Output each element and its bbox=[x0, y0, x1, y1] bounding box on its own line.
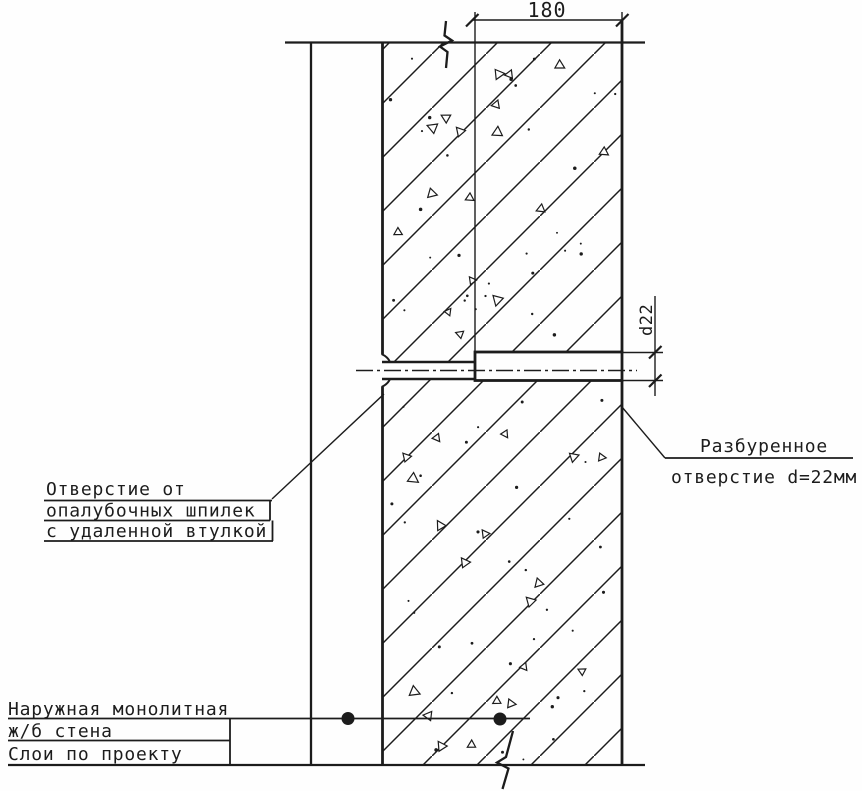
aggregate-dot bbox=[521, 401, 524, 404]
aggregate-dot bbox=[614, 93, 616, 95]
aggregate-dot bbox=[434, 748, 438, 752]
aggregate-dot bbox=[392, 299, 395, 302]
aggregate-dot bbox=[451, 692, 453, 694]
aggregate-dot bbox=[477, 426, 479, 428]
aggregate-dot bbox=[594, 92, 596, 94]
wall-label-line1: Наружная монолитная bbox=[8, 699, 229, 720]
leader-dot-layers bbox=[342, 712, 355, 725]
aggregate-dot bbox=[533, 638, 535, 640]
aggregate-dot bbox=[466, 294, 469, 297]
wall-label-line3: Слои по проекту bbox=[8, 744, 183, 765]
aggregate-dot bbox=[515, 486, 518, 489]
aggregate-dot bbox=[528, 128, 530, 130]
aggregate-dot bbox=[501, 751, 504, 754]
drawing-canvas: 180 d22 Отверстие от опалубочных шпилек … bbox=[0, 0, 862, 791]
dim-d22-label: d22 bbox=[637, 304, 657, 336]
aggregate-dot bbox=[407, 600, 409, 602]
aggregate-dot bbox=[584, 461, 586, 463]
aggregate-dot bbox=[403, 309, 405, 311]
aggregate-dot bbox=[484, 295, 486, 297]
aggregate-dot bbox=[476, 530, 479, 533]
wall-section bbox=[384, 43, 622, 765]
drilled-hole-label-line2: отверстие d=22мм bbox=[671, 467, 857, 488]
concrete-hatch bbox=[384, 43, 622, 765]
wall-label-line2: ж/б стена bbox=[8, 721, 113, 742]
aggregate-dot bbox=[438, 645, 441, 648]
drilled-hole bbox=[475, 352, 622, 381]
aggregate-dot bbox=[599, 546, 602, 549]
aggregate-dot bbox=[533, 58, 536, 61]
aggregate-dot bbox=[464, 299, 466, 301]
drilled-hole-label-line1: Разбуренное bbox=[700, 436, 828, 457]
aggregate-dot bbox=[419, 474, 422, 477]
drilled-hole-outline bbox=[475, 352, 622, 381]
formwork-hole-label-line3: с удаленной втулкой bbox=[46, 521, 267, 542]
aggregate-dot bbox=[568, 518, 570, 520]
aggregate-dot bbox=[573, 167, 577, 171]
aggregate-dot bbox=[583, 690, 585, 692]
aggregate-dot bbox=[572, 630, 574, 632]
aggregate-dot bbox=[564, 250, 566, 252]
aggregate-dot bbox=[525, 569, 527, 571]
aggregate-dot bbox=[509, 662, 512, 665]
wall-detail-drawing: 180 d22 Отверстие от опалубочных шпилек … bbox=[0, 0, 862, 791]
aggregate-dot bbox=[488, 283, 490, 285]
aggregate-dot bbox=[429, 257, 431, 259]
aggregate-dot bbox=[600, 399, 603, 402]
aggregate-dot bbox=[514, 84, 517, 87]
aggregate-dot bbox=[471, 642, 474, 645]
formwork-hole-label-line1: Отверстие от bbox=[46, 479, 186, 500]
aggregate-dot bbox=[531, 313, 533, 315]
aggregate-dot bbox=[508, 560, 511, 563]
aggregate-dot bbox=[546, 609, 548, 611]
aggregate-dot bbox=[522, 758, 524, 760]
aggregate-dot bbox=[457, 254, 460, 257]
aggregate-dot bbox=[446, 154, 449, 157]
aggregate-dot bbox=[402, 406, 404, 408]
aggregate-dot bbox=[465, 441, 468, 444]
aggregate-dot bbox=[390, 502, 393, 505]
dim-180-label: 180 bbox=[527, 0, 566, 22]
aggregate-dot bbox=[428, 116, 431, 119]
aggregate-dot bbox=[404, 521, 406, 523]
aggregate-dot bbox=[413, 612, 415, 614]
aggregate-dot bbox=[421, 130, 423, 132]
aggregate-dot bbox=[419, 208, 423, 212]
aggregate-dot bbox=[580, 252, 583, 255]
aggregate-dot bbox=[580, 243, 582, 245]
formwork-hole-label-line2: опалубочных шпилек bbox=[46, 501, 255, 522]
leader-dot-wall bbox=[494, 713, 507, 726]
aggregate-dot bbox=[531, 272, 534, 275]
aggregate-dot bbox=[556, 696, 559, 699]
aggregate-dot bbox=[411, 58, 413, 60]
aggregate-dot bbox=[509, 78, 512, 82]
aggregate-dot bbox=[556, 232, 558, 234]
aggregate-dot bbox=[602, 591, 605, 594]
aggregate-dot bbox=[552, 738, 555, 741]
aggregate-dot bbox=[551, 705, 554, 708]
aggregate-dot bbox=[526, 253, 528, 255]
aggregate-dot bbox=[389, 98, 392, 101]
aggregate-dot bbox=[553, 333, 556, 336]
